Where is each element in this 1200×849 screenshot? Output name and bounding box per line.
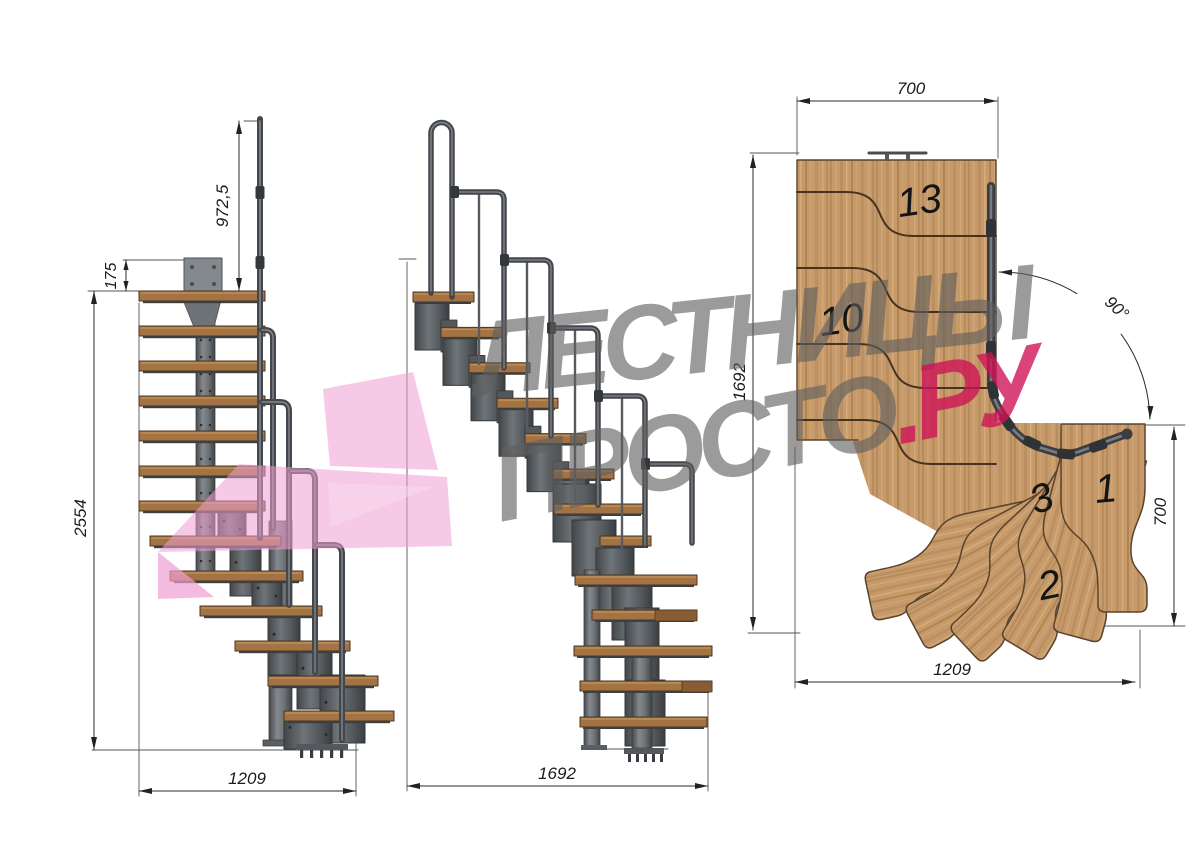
svg-text:1209: 1209: [933, 660, 971, 679]
svg-text:972,5: 972,5: [213, 184, 232, 227]
svg-text:1: 1: [1093, 466, 1119, 512]
svg-text:1209: 1209: [228, 769, 266, 788]
svg-text:2554: 2554: [71, 499, 90, 538]
svg-text:700: 700: [1151, 497, 1170, 526]
svg-text:700: 700: [897, 79, 926, 98]
svg-text:1692: 1692: [538, 764, 576, 783]
svg-text:175: 175: [103, 263, 120, 290]
svg-text:13: 13: [894, 176, 944, 226]
